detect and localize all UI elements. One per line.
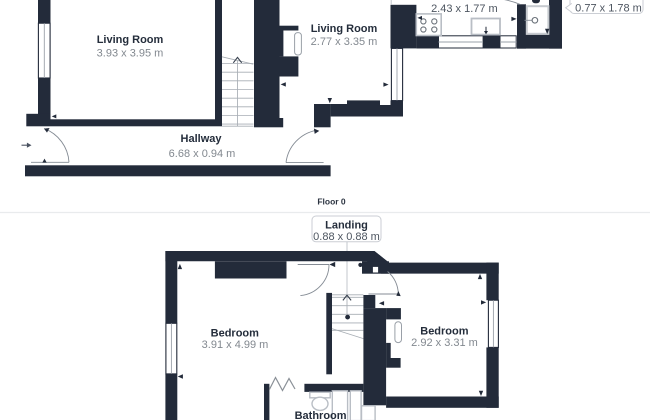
- svg-text:0.77 x 1.78 m: 0.77 x 1.78 m: [575, 2, 642, 14]
- svg-text:Floor 0: Floor 0: [317, 197, 346, 207]
- svg-text:Landing: Landing: [325, 220, 368, 232]
- svg-text:2.77 x 3.35 m: 2.77 x 3.35 m: [311, 36, 378, 48]
- svg-text:3.91 x 4.99 m: 3.91 x 4.99 m: [202, 339, 269, 351]
- svg-text:Bedroom: Bedroom: [420, 325, 469, 337]
- svg-text:Living Room: Living Room: [311, 23, 378, 35]
- svg-text:2.92 x 3.31 m: 2.92 x 3.31 m: [411, 337, 478, 349]
- svg-text:Bathroom: Bathroom: [295, 410, 347, 420]
- svg-text:Living Room: Living Room: [97, 34, 164, 46]
- svg-text:6.68 x 0.94 m: 6.68 x 0.94 m: [169, 148, 236, 160]
- svg-text:0.88 x 0.88 m: 0.88 x 0.88 m: [313, 231, 380, 243]
- svg-text:Bedroom: Bedroom: [211, 328, 260, 340]
- svg-text:Hallway: Hallway: [181, 133, 223, 145]
- svg-text:3.93 x 3.95 m: 3.93 x 3.95 m: [97, 48, 164, 60]
